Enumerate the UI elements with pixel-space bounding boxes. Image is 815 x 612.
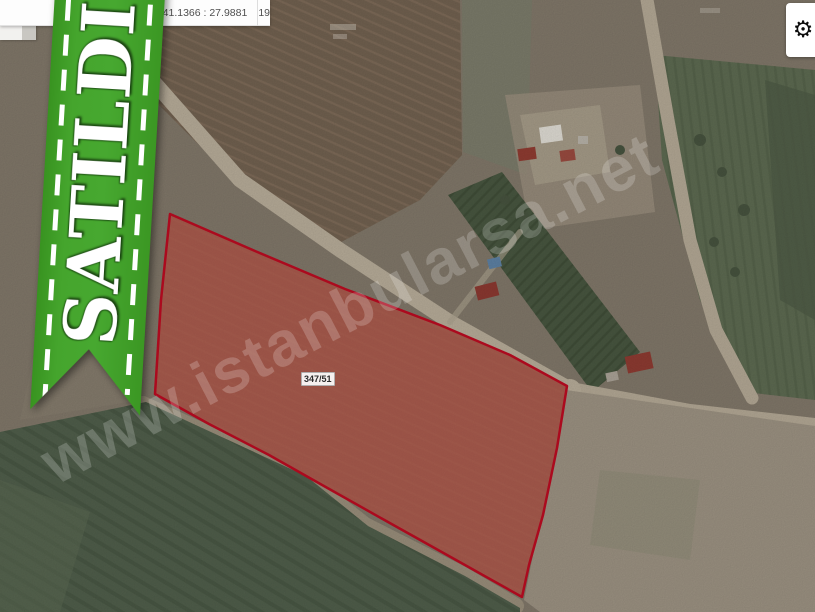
gear-icon: ⚙ (793, 19, 814, 42)
coordinates-readout: 41.1366 : 27.9881 (163, 7, 258, 19)
readout-bar-spacer (0, 0, 142, 25)
app-window: www.istanbularsa.net 347/51 41.1366 : 27… (0, 0, 815, 612)
zoom-level-readout: 19 (258, 7, 270, 19)
map-viewport[interactable] (0, 0, 815, 612)
map-readout-bar: 41.1366 : 27.9881 19 (0, 0, 270, 26)
satellite-imagery (0, 0, 815, 612)
settings-button[interactable]: ⚙ (786, 3, 815, 57)
parcel-number-tag[interactable]: 347/51 (301, 372, 335, 386)
locate-icon[interactable] (142, 6, 155, 19)
